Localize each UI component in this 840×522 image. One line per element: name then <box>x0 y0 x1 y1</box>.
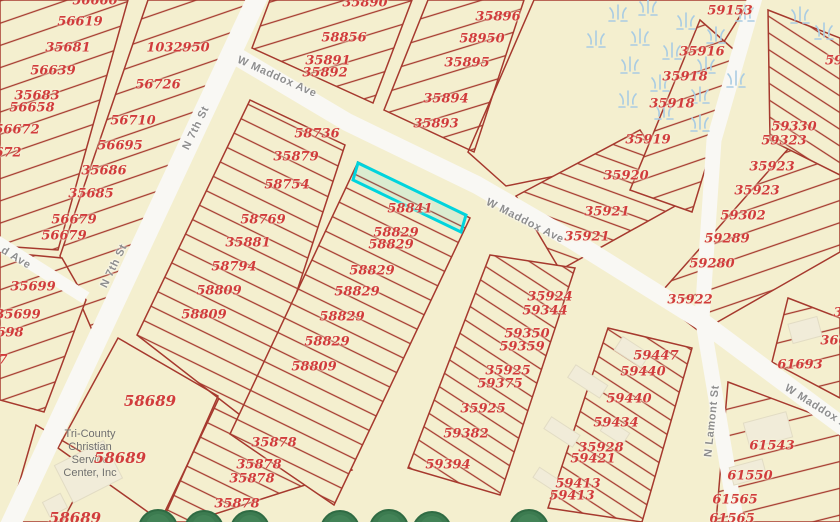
parcel-label: 35920 <box>603 169 648 184</box>
street-label: W Maddox Ave <box>782 382 840 438</box>
parcel-label: 59447 <box>633 349 678 364</box>
parcel-label: 58829 <box>334 285 379 300</box>
parcel-label: 58829 <box>319 310 364 325</box>
parcel-label: 56639 <box>30 64 75 79</box>
parcel-label: 360 <box>820 334 840 349</box>
parcel-label: 35878 <box>251 436 296 451</box>
parcel-label: 59323 <box>761 134 806 149</box>
parcel-label: 35918 <box>662 70 707 85</box>
parcel-label: 1032950 <box>146 41 209 56</box>
parcel-label: 35916 <box>679 45 724 60</box>
parcel-label: 59434 <box>593 416 638 431</box>
parcel-label: 35891 <box>305 54 350 69</box>
parcel-label: 35890 <box>342 0 387 11</box>
street-label: d Ave <box>0 244 33 271</box>
street-label: W Maddox Ave <box>235 54 318 100</box>
parcel-label: 56658 <box>9 101 54 116</box>
parcel-label: 58829 <box>373 226 418 241</box>
parcel-label: 35919 <box>625 133 670 148</box>
parcel-label: 56695 <box>97 139 142 154</box>
parcel-label: 61565 <box>712 493 757 508</box>
parcel-label: 35918 <box>649 97 694 112</box>
parcel-label: 35896 <box>475 10 520 25</box>
parcel-label: 35895 <box>444 56 489 71</box>
poi-line: Service <box>63 454 116 467</box>
parcel-label: 35921 <box>564 230 609 245</box>
parcel-label: 35878 <box>214 497 259 512</box>
parcel-label: 61550 <box>727 469 772 484</box>
parcel-label: 35925 <box>485 364 530 379</box>
parcel-label: 58689 <box>49 509 101 522</box>
parcel-label: 59413 <box>549 489 594 504</box>
parcel-label: 56679 <box>41 229 86 244</box>
parcel-label: 58769 <box>240 213 285 228</box>
street-label: N 7th St <box>180 104 211 152</box>
parcel-label: 35878 <box>229 472 274 487</box>
parcel-label: 58689 <box>94 449 146 467</box>
parcel-label: 56660 <box>72 0 117 9</box>
parcel-label: 59 <box>825 54 840 69</box>
parcel-label: 61693 <box>777 358 822 373</box>
label-layer: Tri-County Christian Service Center, Inc… <box>0 0 840 522</box>
parcel-label: 56726 <box>135 78 180 93</box>
parcel-label: 61543 <box>749 439 794 454</box>
street-label: N Lamont St <box>702 384 722 457</box>
poi-label: Tri-County Christian Service Center, Inc <box>63 428 116 480</box>
parcel-label: 35699 <box>10 280 55 295</box>
parcel-label: 35894 <box>423 92 468 107</box>
poi-line: Christian <box>63 441 116 454</box>
parcel-label: 58754 <box>264 178 309 193</box>
parcel-label: 59153 <box>707 4 752 19</box>
parcel-label: 58856 <box>321 31 366 46</box>
parcel-label: 58794 <box>211 260 256 275</box>
parcel-label: 35923 <box>749 160 794 175</box>
parcel-label: 59344 <box>522 304 567 319</box>
poi-line: Tri-County <box>63 428 116 441</box>
parcel-label: 59421 <box>570 452 615 467</box>
parcel-label: 35923 <box>734 184 779 199</box>
parcel-label: 35921 <box>584 205 629 220</box>
parcel-label: 698 <box>0 326 24 341</box>
parcel-label: 672 <box>0 146 22 161</box>
parcel-label: 35686 <box>81 164 126 179</box>
parcel-label: 7 <box>0 353 8 368</box>
parcel-label: 56619 <box>57 15 102 30</box>
parcel-label: 59440 <box>620 365 665 380</box>
parcel-label: 59375 <box>477 377 522 392</box>
parcel-label: 35922 <box>667 293 712 308</box>
parcel-label: 58809 <box>196 284 241 299</box>
street-label: W Maddox Ave <box>484 196 566 246</box>
map-canvas[interactable]: Tri-County Christian Service Center, Inc… <box>0 0 840 522</box>
parcel-label: 58809 <box>181 308 226 323</box>
parcel-label: 59394 <box>425 458 470 473</box>
poi-line: Center, Inc <box>63 467 116 480</box>
parcel-label: 58829 <box>368 238 413 253</box>
parcel-label: 35683 <box>14 89 59 104</box>
parcel-label: 58809 <box>291 360 336 375</box>
parcel-label: 59350 <box>504 327 549 342</box>
parcel-label: 59382 <box>443 427 488 442</box>
parcel-label: 59440 <box>606 392 651 407</box>
parcel-label: 58841 <box>387 202 432 217</box>
parcel-label: 3 <box>833 306 840 321</box>
parcel-label: 59289 <box>704 232 749 247</box>
parcel-label: 35699 <box>0 308 41 323</box>
parcel-label: 56672 <box>0 123 40 138</box>
parcel-label: 59302 <box>720 209 765 224</box>
parcel-label: 59359 <box>499 340 544 355</box>
parcel-label: 58829 <box>349 264 394 279</box>
parcel-label: 58829 <box>304 335 349 350</box>
parcel-label: 59413 <box>555 477 600 492</box>
parcel-label: 58736 <box>294 127 339 142</box>
parcel-label: 59330 <box>771 120 816 135</box>
parcel-label: 59280 <box>689 257 734 272</box>
parcel-label: 35879 <box>273 150 318 165</box>
parcel-label: 58689 <box>124 392 176 410</box>
parcel-label: 35928 <box>578 441 623 456</box>
parcel-label: 35925 <box>460 402 505 417</box>
parcel-label: 35681 <box>45 41 90 56</box>
parcel-label: 61565 <box>709 512 754 522</box>
parcel-label: 56710 <box>110 114 155 129</box>
parcel-label: 56679 <box>51 213 96 228</box>
parcel-label: 35893 <box>413 117 458 132</box>
parcel-label: 35892 <box>302 66 347 81</box>
street-label: N 7th St <box>98 242 129 290</box>
parcel-label: 35685 <box>68 187 113 202</box>
parcel-label: 35881 <box>225 236 270 251</box>
parcel-label: 35924 <box>527 290 572 305</box>
parcel-label: 35878 <box>236 458 281 473</box>
parcel-label: 58950 <box>459 32 504 47</box>
